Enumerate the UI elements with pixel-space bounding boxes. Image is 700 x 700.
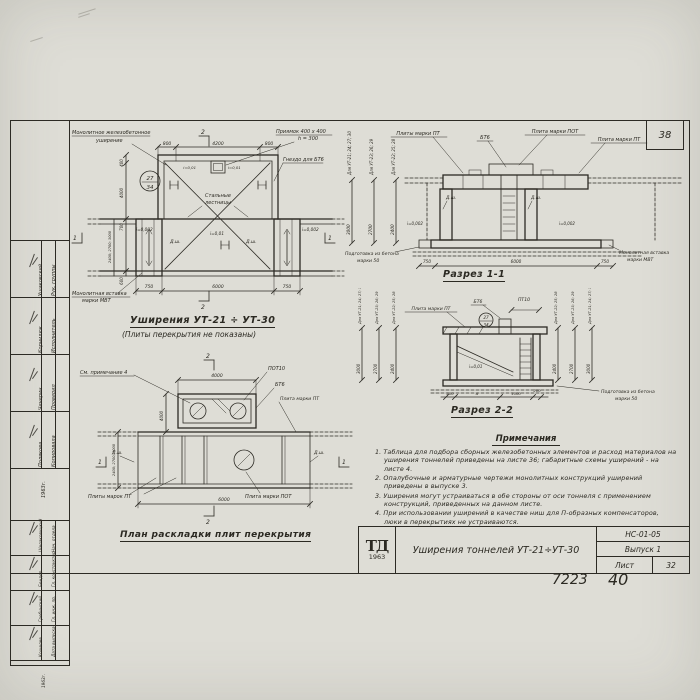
handwritten-number: 7223 xyxy=(552,572,588,588)
dim: 750 xyxy=(145,284,154,290)
signature-scribble xyxy=(29,368,35,381)
dim-columns-left: Для УТ-21; 24; 27; 30 Для УТ-23; 26; 29 … xyxy=(346,131,399,246)
stamp-name: Полякова xyxy=(38,442,44,467)
dsh-left: Д.ш. xyxy=(445,195,456,201)
dim-col-label: Для УТ-21; 24; 27; 30 xyxy=(588,288,592,325)
dim-col-value: 2700 xyxy=(373,363,378,374)
title-block-right: НС-01-05 Выпуск 1 Лист 32 xyxy=(596,527,689,573)
drawing-subtitle: (Плиты перекрытия не показаны) xyxy=(122,330,256,339)
marker-label: 2 xyxy=(206,353,210,360)
widening-plan-structure xyxy=(178,394,256,428)
dim: 750 xyxy=(423,259,431,264)
dim: 700 xyxy=(119,223,124,231)
signature-scribble xyxy=(29,522,35,535)
dim-col-label: Для УТ-21; 24; 27; 30 xyxy=(347,131,352,176)
stamp-name: Гребинский xyxy=(38,596,44,622)
dim-top: 800 4200 800 xyxy=(156,141,281,161)
logo-box: ТД 1963 xyxy=(359,527,395,573)
label-bt6: БТ6 xyxy=(480,135,490,141)
dsh-right: Д.ш. xyxy=(530,195,541,201)
stamp-rule xyxy=(11,590,69,591)
dsh-left: Д.ш. xyxy=(169,239,181,245)
dim: 4000 xyxy=(119,187,124,198)
section-structure xyxy=(405,164,683,256)
marker-label: 1 xyxy=(328,235,332,242)
label-pit: Приямок 400 x 400 xyxy=(276,129,326,135)
sheet-number: 32 xyxy=(653,557,689,573)
widening-plan-drawing: 2 800 4200 800 xyxy=(70,123,345,345)
label-monolithic: Монолитное железобетонное xyxy=(72,130,150,136)
drawing-title: Уширения УТ-21 ÷ УТ-30 xyxy=(130,315,275,328)
label-prep-2: марки 50 xyxy=(357,258,379,264)
signature-scribble xyxy=(29,311,35,324)
slope-right: i=0,002 xyxy=(559,221,575,226)
label-insert: Монолитная вставка xyxy=(619,250,669,256)
label-ladders-2: лестницы xyxy=(204,200,231,206)
dim-col-label: Для УТ-23; 26; 29 xyxy=(375,291,379,325)
drawing-sheet: 38 Рук. группы Ушаковский Исполнитель Ко… xyxy=(0,0,700,700)
dim: 800 xyxy=(163,141,172,147)
slope-edge-left: i=0,002 xyxy=(136,227,153,232)
marker-label: 1 xyxy=(342,459,346,466)
stamp-name: Кошелев xyxy=(38,637,44,657)
dim-col-value: 3000 xyxy=(346,224,351,235)
callout-circle: 27 34 xyxy=(479,313,493,328)
dim-col-label: Для УТ-22; 25; 28 xyxy=(391,138,396,176)
widening-plan-svg: 2 800 4200 800 xyxy=(70,123,345,313)
dim: 800 xyxy=(265,141,274,147)
stamp-role: Гл. конструктор xyxy=(51,551,57,587)
marker-label: 2 xyxy=(206,519,210,526)
section-marker-bottom: 2 xyxy=(199,291,209,311)
dim-columns-left: Для УТ-21; 24; 27; 30 Для УТ-23; 26; 29 … xyxy=(356,288,399,383)
marker-label: 2 xyxy=(201,129,205,136)
label-pts: Плиты марок ПТ xyxy=(88,494,132,500)
dim: 400 xyxy=(119,159,124,167)
stamp-name: Корнилюк xyxy=(38,326,44,353)
dim-top: 4000 xyxy=(176,373,259,394)
dim-col-label: Для УТ-21; 24; 27; 30 xyxy=(358,288,362,325)
stamp-rule xyxy=(11,555,69,556)
label-pot: Плита марки ПОТ xyxy=(245,494,292,500)
signature-scribble xyxy=(29,627,35,640)
notes-title: Примечания xyxy=(492,434,561,446)
label-socket: Гнездо для БТ6 xyxy=(283,157,324,163)
label-plates-pt: Плиты марки ПТ xyxy=(396,131,440,137)
section-marker-left: 1 xyxy=(72,233,82,243)
label-pot10: ПОТ10 xyxy=(268,366,285,372)
label-monolithic-2: уширение xyxy=(95,138,123,144)
stamp-name: Шелаковицкий xyxy=(38,519,44,552)
stamp-role: Дата выпуска xyxy=(51,626,57,657)
dim-col-value: 2700 xyxy=(569,363,574,374)
dim: 600 xyxy=(119,277,124,285)
label-ladders: Стальные xyxy=(205,193,231,199)
stamp-name: Ушаковский xyxy=(38,264,44,296)
dim-col-label: Для УТ-23; 26; 29 xyxy=(369,138,374,176)
signature-scribble xyxy=(29,592,35,605)
drawing-title: План раскладки плит перекрытия xyxy=(120,530,311,542)
dsh-right: Д.ш. xyxy=(313,450,325,456)
label-prep: Подготовка из бетона xyxy=(345,251,399,257)
section-title: Разрез 2-2 xyxy=(451,405,513,418)
section-2-2-svg: Для УТ-21; 24; 27; 30 Для УТ-23; 26; 29 … xyxy=(343,288,688,406)
stamp-name: Бендер xyxy=(38,571,44,587)
stamp-rule xyxy=(11,625,69,626)
dim-bottom: 750 6000 750 xyxy=(134,276,303,295)
notes-block: Примечания 1. Таблица для подбора сборны… xyxy=(375,426,677,527)
note-item: 3. Уширения могут устраиваться в обе сто… xyxy=(375,492,677,509)
slope: i=0,01 xyxy=(469,364,482,369)
dim: 4000 xyxy=(159,410,164,421)
sheet-title: Уширения тоннелей УТ-21÷УТ-30 xyxy=(413,545,580,556)
dim-col-value: 2700 xyxy=(368,224,373,235)
callout-circle: 27 34 xyxy=(140,171,160,191)
label-see-note: См. примечание 4 xyxy=(80,370,127,376)
section-1-1-svg: Для УТ-21; 24; 27; 30 Для УТ-23; 26; 29 … xyxy=(343,123,688,271)
label-prep: Подготовка из бетона xyxy=(601,389,655,395)
slope-pit-left: i=0,01 xyxy=(183,165,196,170)
marker-label: 1 xyxy=(73,235,77,242)
section-marker-top: 2 xyxy=(204,353,214,370)
stamp-role: Копировала xyxy=(51,435,57,467)
callout-number: 27 xyxy=(483,315,489,320)
label-insert: Монолитная вставка xyxy=(72,291,127,297)
dim: 750 xyxy=(601,259,609,264)
stamp-role: Проверил xyxy=(51,384,57,410)
note-item: 1. Таблица для подбора сборных железобет… xyxy=(375,448,677,473)
slope-mid: i=0,01 xyxy=(210,231,224,236)
label-bt6: БТ6 xyxy=(474,299,483,305)
stamp-rule xyxy=(11,297,69,298)
dim-col-value: 2400 xyxy=(552,363,557,374)
label-pit-h: h = 300 xyxy=(298,136,318,142)
callout-sheet: 34 xyxy=(483,323,489,328)
label-pt10: ПТ10 xyxy=(518,297,530,303)
slope-edge-right: i=0,002 xyxy=(302,227,319,232)
dim: 1000 xyxy=(511,391,521,396)
section-marker-top: 2 xyxy=(199,129,209,146)
stamp-year: 1963г. xyxy=(41,481,47,498)
marker-label: 1 xyxy=(98,459,102,466)
signature-scribble xyxy=(29,557,35,570)
stamp-name: Чичерин xyxy=(38,388,44,410)
stamp-role: Исполнитель xyxy=(51,318,57,353)
section-structure xyxy=(431,319,558,393)
label-prep-2: марки 50 xyxy=(615,396,637,402)
dim: 2400; 2700; 3000 xyxy=(112,443,116,476)
note-item: 4. При использовании уширений в качестве… xyxy=(375,509,677,526)
section-1-1-drawing: Для УТ-21; 24; 27; 30 Для УТ-23; 26; 29 … xyxy=(343,123,688,285)
label-pt: Плита марки ПТ xyxy=(598,137,641,143)
section-marker-right: 1 xyxy=(339,457,349,467)
section-title: Разрез 1-1 xyxy=(443,269,505,282)
dsh-right: Д.ш. xyxy=(245,239,257,245)
dim-col-value: 2400 xyxy=(390,224,395,235)
section-marker-bottom: 2 xyxy=(204,506,214,526)
section-marker-left: 1 xyxy=(96,457,106,467)
pencil-mark xyxy=(30,36,43,40)
dim: 6000 xyxy=(212,284,224,290)
dim: 6000 xyxy=(218,497,230,503)
dim-col-value: 3000 xyxy=(586,363,591,374)
label-pt: Плита марки ПТ xyxy=(280,396,320,402)
dim: 200 xyxy=(533,388,541,393)
stamp-rule xyxy=(11,240,69,241)
dim-columns-right: Для УТ-22; 25; 28 Для УТ-23; 26; 29 Для … xyxy=(552,288,595,383)
dim-col-label: Для УТ-22; 25; 28 xyxy=(554,291,558,325)
dim: 750 xyxy=(283,284,292,290)
logo-td: ТД xyxy=(366,539,389,553)
slab-layout-svg: 2 4000 xyxy=(60,348,360,526)
issue-label: Выпуск 1 xyxy=(597,542,689,557)
dim: 4000 xyxy=(211,373,223,379)
dim-col-value: 2400 xyxy=(390,363,395,374)
label-insert-2: марки МВТ xyxy=(82,298,112,304)
label-insert-2: марки МВТ xyxy=(627,257,655,263)
dim-bottom: 750 6000 750 xyxy=(417,259,616,269)
dim: 200 xyxy=(446,391,454,396)
callout-sheet: 34 xyxy=(147,185,154,191)
logo-year: 1963 xyxy=(369,553,386,561)
label-bt6: БТ6 xyxy=(275,382,285,388)
dim: А xyxy=(475,391,479,396)
signature-scribble xyxy=(29,254,35,267)
label-pt: Плита марки ПТ xyxy=(411,306,451,312)
slab-layout-drawing: 2 4000 xyxy=(60,348,360,553)
title-cell: Уширения тоннелей УТ-21÷УТ-30 xyxy=(395,527,596,573)
slab-band-structure xyxy=(98,432,352,488)
pencil-mark xyxy=(78,8,96,16)
section-marker-right: 1 xyxy=(325,233,335,243)
dim-col-label: Для УТ-23; 26; 29 xyxy=(571,291,575,325)
slope-pit-right: i=0,01 xyxy=(228,165,241,170)
note-item: 2. Опалубочные и арматурные чертежи моно… xyxy=(375,474,677,491)
widening-structure xyxy=(158,155,278,269)
slope-left: i=0,002 xyxy=(407,221,423,226)
stamp-role: Гл. инж. пр. xyxy=(51,596,57,622)
stamp-role: Нач. отдела xyxy=(51,525,57,552)
dim: 4200 xyxy=(212,141,224,147)
callout-number: 27 xyxy=(147,176,154,182)
doc-code: НС-01-05 xyxy=(597,527,689,542)
title-block: ТД 1963 Уширения тоннелей УТ-21÷УТ-30 НС… xyxy=(358,526,690,574)
stamp-year: 1963г. xyxy=(41,674,47,688)
dim: 6000 xyxy=(511,259,522,264)
section-2-2-drawing: Для УТ-21; 24; 27; 30 Для УТ-23; 26; 29 … xyxy=(343,288,688,423)
stamp-role: Рук. группы xyxy=(51,265,57,296)
dim-col-label: Для УТ-22; 25; 28 xyxy=(392,291,396,325)
dim: 2400; 2700; 3000 xyxy=(108,230,112,263)
signature-scribble xyxy=(29,425,35,438)
handwritten-number: 40 xyxy=(608,570,628,589)
marker-label: 2 xyxy=(201,304,205,311)
stamp-rule xyxy=(11,660,69,661)
label-pot: Плита марки ПОТ xyxy=(532,129,579,135)
